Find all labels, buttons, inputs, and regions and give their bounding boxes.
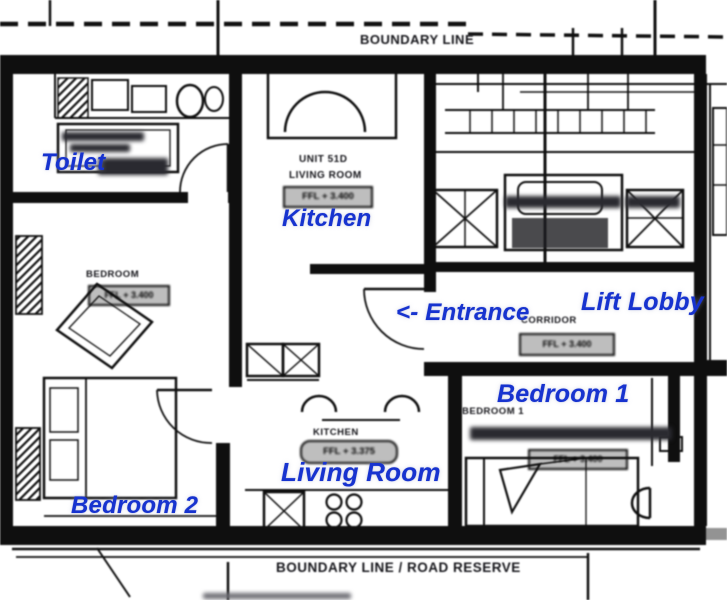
label-bedroom1: Bedroom 1 [497, 382, 629, 407]
plan-text-boundary-top: BOUNDARY LINE [360, 33, 474, 46]
plan-text-corridor-ffl: FFL + 3.400 [519, 333, 615, 356]
label-lift-lobby: Lift Lobby [581, 290, 704, 315]
plan-text-kitchen-name: KITCHEN [313, 428, 359, 438]
label-bedroom2: Bedroom 2 [71, 494, 198, 518]
toilet-ffl-smudge [98, 158, 168, 175]
label-toilet: Toilet [41, 151, 105, 175]
plan-text-bedroom1-name: BEDROOM 1 [462, 407, 524, 417]
plan-text-unit-room: LIVING ROOM [289, 171, 362, 181]
plan-text-bedroom1-ffl: FFL + 3.400 [528, 449, 628, 470]
lift-lobby-text-smudge [505, 196, 621, 208]
plan-text-bedroom1-note-smudge [470, 427, 672, 440]
lift-lobby-text-smudge [626, 196, 680, 208]
boundary-dashed-line [0, 0, 727, 58]
label-entrance: <- Entrance [396, 301, 530, 325]
plan-text-unit-name: UNIT 51D [299, 155, 347, 165]
label-kitchen: Kitchen [282, 207, 371, 231]
lift-lobby-stairs [433, 74, 694, 262]
label-living-room: Living Room [281, 459, 441, 485]
floorplan-screenshot: BOUNDARY LINE BOUNDARY LINE / ROAD RESER… [0, 0, 727, 600]
plan-text-bedroom2-name: BEDROOM [86, 270, 139, 280]
plan-text-boundary-bottom: BOUNDARY LINE / ROAD RESERVE [276, 561, 521, 575]
toilet-text-smudge [62, 132, 144, 141]
plan-text-bedroom2-ffl: FFL + 3.400 [88, 285, 170, 306]
cutoff-text-smudge [203, 593, 351, 599]
